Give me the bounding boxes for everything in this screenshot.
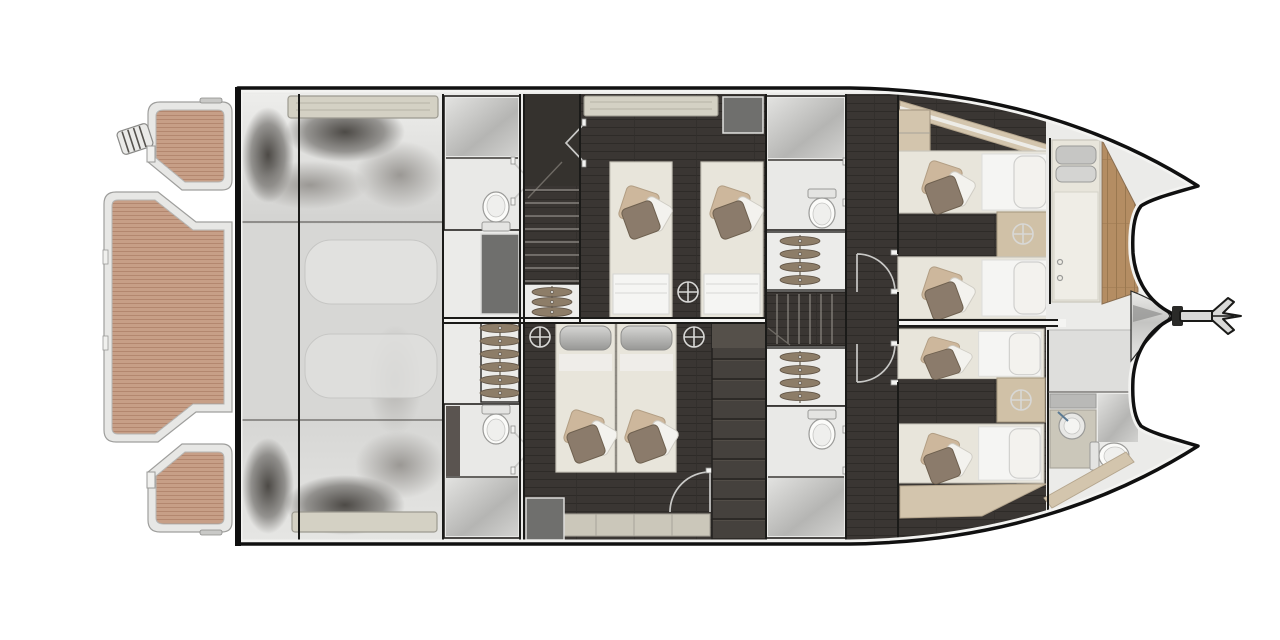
corridor	[846, 94, 899, 544]
platform-latch	[103, 336, 108, 350]
aft-stairs	[524, 94, 580, 320]
storage-locker	[481, 234, 519, 314]
platform-latch	[147, 146, 155, 162]
swim-platform	[103, 98, 232, 535]
shower	[446, 98, 518, 156]
bridgedeck-wedge	[1131, 291, 1170, 361]
cleat-icon	[200, 98, 222, 103]
forward-stairs	[766, 292, 846, 346]
platform-latch	[103, 250, 108, 264]
cleat-icon	[200, 530, 222, 535]
forward-closet-starboard	[766, 348, 846, 406]
sink-icon	[1058, 412, 1085, 439]
transom-wall	[235, 87, 241, 546]
engine-block-icon	[242, 438, 294, 534]
aft-bench	[292, 512, 437, 532]
platform-teak-pad-mid	[112, 200, 224, 434]
midship-cabin-port	[566, 94, 766, 320]
stairs-hanging-locker	[524, 284, 580, 320]
overhead-hatch-icon	[584, 96, 718, 116]
engine-room	[240, 94, 445, 544]
storage-locker	[526, 498, 564, 540]
shower	[768, 98, 844, 158]
generator-icon	[305, 334, 437, 398]
storage-locker	[723, 97, 763, 133]
floorplan-svg	[0, 0, 1280, 640]
forward-cabin-starboard	[898, 326, 1068, 544]
floorplan-canvas	[0, 0, 1280, 640]
anchor-icon	[1172, 298, 1241, 334]
forward-cabin-port	[898, 94, 1068, 322]
shower	[446, 478, 518, 536]
platform-latch	[147, 472, 155, 488]
forward-closet-port	[766, 232, 846, 290]
pillow	[1056, 166, 1096, 182]
aft-closet-starboard	[480, 318, 520, 402]
wardrobe	[712, 322, 766, 544]
generator-icon	[305, 240, 437, 304]
pillow	[1056, 146, 1096, 164]
vanity	[446, 406, 460, 476]
shelf	[1050, 394, 1096, 408]
interior	[238, 88, 1198, 544]
midship-cabin-starboard	[524, 322, 766, 544]
aft-head-port	[444, 96, 531, 231]
shower	[768, 478, 844, 536]
deck-hatch-icon	[288, 96, 438, 118]
wardrobe-shelf	[712, 322, 766, 348]
aft-head-starboard	[444, 404, 531, 538]
